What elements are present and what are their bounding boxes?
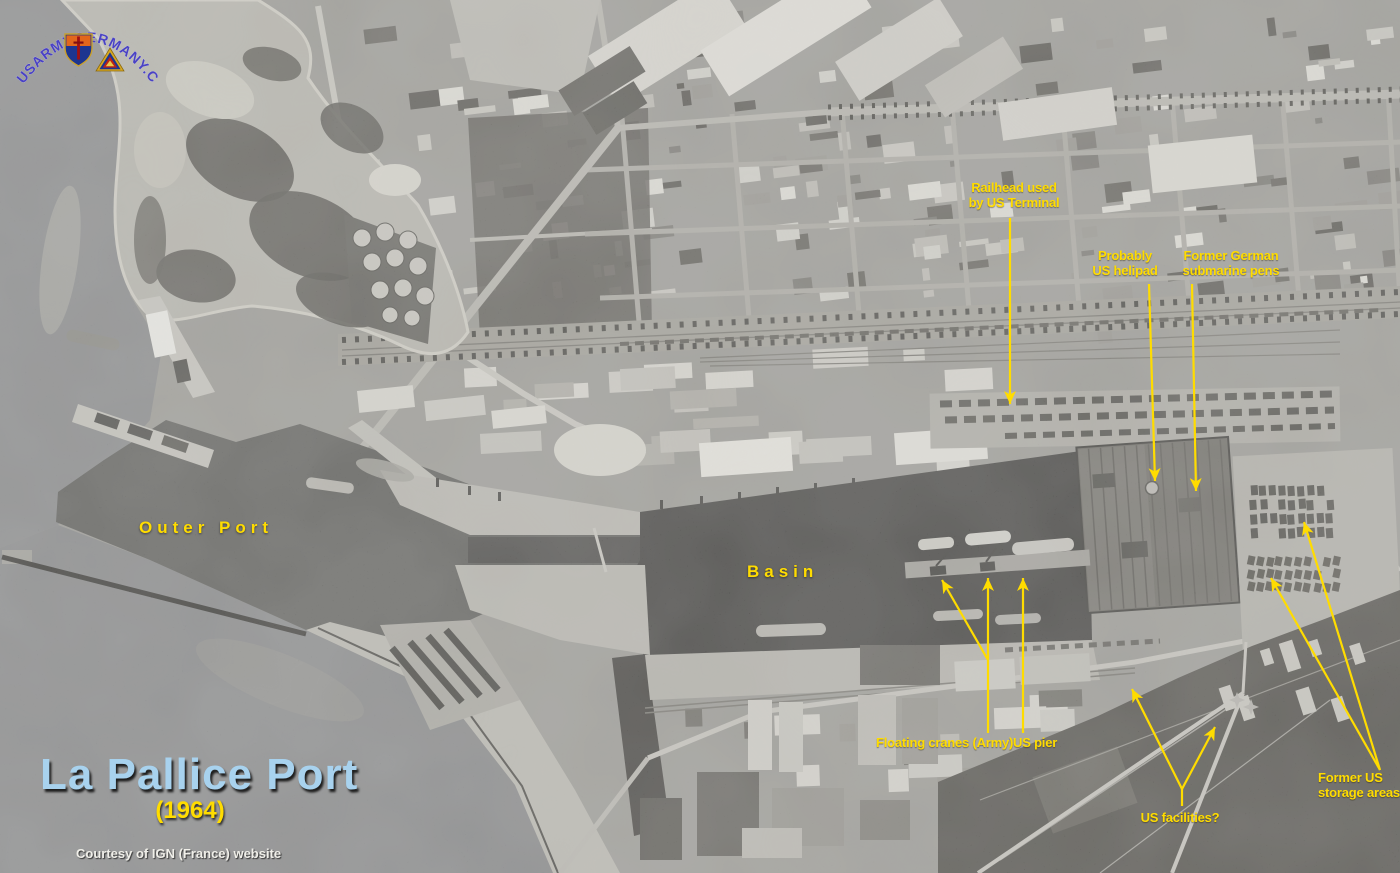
usareur-shield-icon [65, 34, 92, 66]
film-grain [0, 0, 1400, 873]
usarmygermany-logo: USARMYGERMANY.COM [8, 2, 168, 94]
annotated-aerial-photo-page: Railhead used by US Terminal Probably US… [0, 0, 1400, 873]
aerial-photo [0, 0, 1400, 873]
